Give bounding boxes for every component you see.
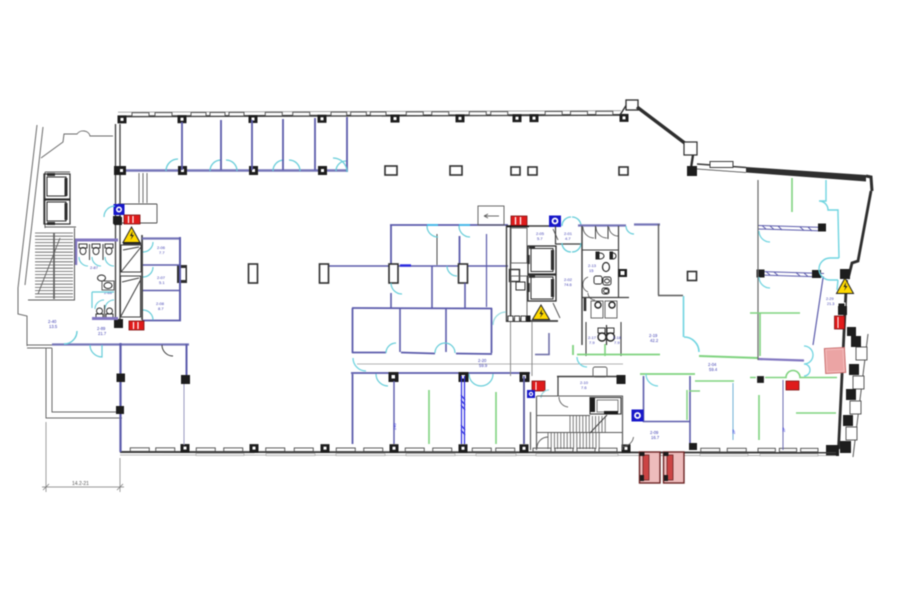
svg-text:13.5: 13.5	[49, 324, 58, 329]
svg-text:74.6: 74.6	[564, 282, 573, 287]
svg-text:8.7: 8.7	[158, 306, 164, 311]
svg-text:7.9: 7.9	[614, 340, 620, 345]
svg-text:4.7: 4.7	[565, 236, 571, 241]
svg-text:7.6: 7.6	[581, 385, 587, 390]
svg-text:240: 240	[392, 423, 397, 430]
svg-text:2P: 2P	[732, 429, 736, 434]
svg-text:42.2: 42.2	[650, 338, 659, 343]
svg-text:15: 15	[589, 268, 594, 273]
svg-text:59.9: 59.9	[479, 363, 488, 368]
svg-text:7.9: 7.9	[589, 340, 595, 345]
svg-text:21.7: 21.7	[98, 331, 107, 336]
svg-text:14.2-21: 14.2-21	[72, 481, 89, 487]
svg-text:59.4: 59.4	[709, 367, 718, 372]
svg-text:5.1: 5.1	[159, 280, 165, 285]
svg-text:2-87: 2-87	[90, 265, 99, 270]
svg-text:2-29: 2-29	[826, 297, 834, 301]
svg-text:16.7: 16.7	[651, 435, 660, 440]
svg-text:2P: 2P	[782, 427, 786, 432]
svg-text:5.7: 5.7	[537, 236, 543, 241]
svg-text:21.3: 21.3	[827, 302, 834, 306]
svg-text:7.7: 7.7	[159, 250, 165, 255]
